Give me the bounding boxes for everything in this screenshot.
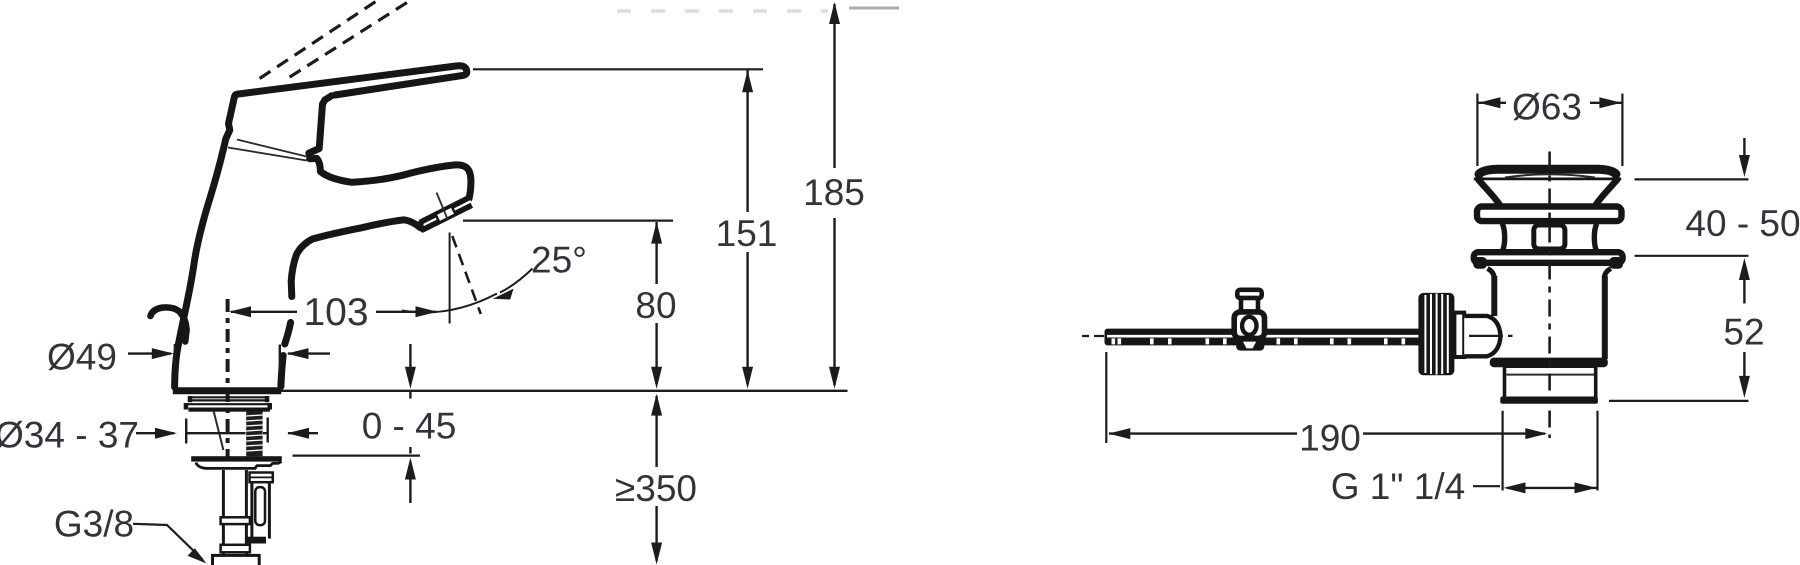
svg-text:≥350: ≥350 [615,468,697,509]
svg-text:103: 103 [303,291,368,334]
svg-text:Ø34 - 37: Ø34 - 37 [0,415,139,456]
svg-text:40 - 50: 40 - 50 [1685,203,1800,244]
svg-text:Ø63: Ø63 [1512,87,1582,128]
svg-text:G 1" 1/4: G 1" 1/4 [1331,466,1466,507]
svg-text:185: 185 [803,172,865,213]
svg-text:151: 151 [716,213,778,254]
svg-text:G3/8: G3/8 [54,504,134,545]
svg-text:25°: 25° [531,240,587,281]
svg-text:Ø49: Ø49 [47,337,117,378]
svg-text:80: 80 [635,285,676,326]
svg-text:52: 52 [1723,312,1764,353]
svg-text:190: 190 [1299,417,1361,458]
svg-text:0 - 45: 0 - 45 [362,406,457,447]
